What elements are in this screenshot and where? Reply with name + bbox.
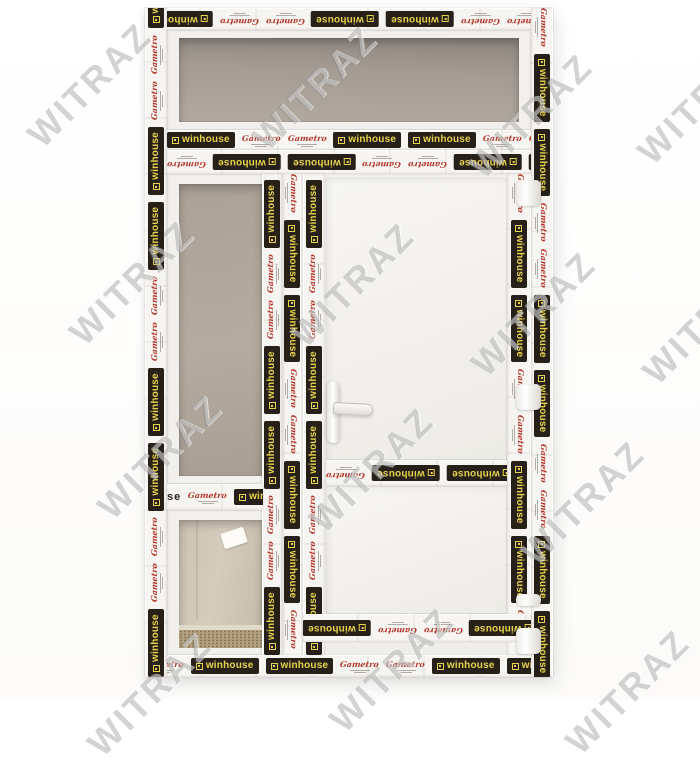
gametro-label: Gametro <box>378 622 417 635</box>
winhouse-logo: winhouse <box>511 295 527 363</box>
gametro-label: Gametro <box>536 249 549 288</box>
winhouse-square-icon <box>502 470 507 477</box>
winhouse-brand-text: winhouse <box>423 135 471 145</box>
winhouse-logo: winhouse <box>213 154 281 170</box>
tape-fineprint-line <box>470 15 490 16</box>
gametro-brand-text: Gametro <box>150 563 158 603</box>
tape-fineprint-line <box>229 15 249 16</box>
tape-mullion-right: GametrowinhousewinhouseGametroGametrowin… <box>283 174 301 655</box>
winhouse-square-icon <box>239 494 246 501</box>
sidelight-upper-glass <box>179 184 262 476</box>
winhouse-logo: winhouse <box>372 465 440 481</box>
winhouse-brand-text: winhouse <box>391 14 439 24</box>
winhouse-brand-text: winhouse <box>151 8 161 13</box>
gametro-brand-text: Gametro <box>541 490 549 530</box>
winhouse-square-icon <box>516 466 523 473</box>
tape-fineprint-line <box>396 670 416 671</box>
winhouse-square-icon <box>289 541 296 548</box>
tape-outer-left: winhouseGametroGametrowinhousewinhouseGa… <box>145 8 167 677</box>
tape-fineprint-line <box>162 49 163 61</box>
gametro-brand-text: Gametro <box>266 300 274 340</box>
winhouse-logo: winhouse <box>284 536 300 604</box>
winhouse-logo: winhouse <box>148 368 164 436</box>
tape-fineprint-line <box>320 555 321 567</box>
gametro-brand-text: Gametro <box>460 18 500 26</box>
tape-fineprint-line <box>536 217 537 229</box>
winhouse-square-icon <box>338 137 345 144</box>
winhouse-logo: winhouse <box>148 127 164 195</box>
door-lower-panel <box>326 486 507 614</box>
winhouse-square-icon <box>311 402 318 409</box>
gametro-label: Gametro <box>266 13 305 26</box>
gametro-label: Gametro <box>536 8 549 47</box>
gametro-brand-text: Gametro <box>386 660 426 668</box>
winhouse-brand-text: winhouse <box>537 310 547 358</box>
tape-outer-right: GametrowinhousewinhouseGametroGametrowin… <box>531 8 553 677</box>
tape-fineprint-line <box>536 263 537 275</box>
tape-fineprint-line <box>278 314 279 326</box>
winhouse-logo: winhouse <box>511 220 527 288</box>
winhouse-square-icon <box>442 16 449 23</box>
tape-fineprint-line <box>162 577 163 589</box>
winhouse-logo: winhouse <box>306 421 322 489</box>
gametro-label: Gametro <box>286 369 299 408</box>
tape-fineprint-line <box>318 264 319 284</box>
tape-door-right-stile: GametrowinhousewinhouseGametroGametrowin… <box>507 174 531 655</box>
tape-fineprint-line <box>276 264 277 284</box>
gametro-brand-text: Gametro <box>266 495 274 535</box>
gametro-brand-text: Gametro <box>377 627 417 635</box>
winhouse-logo: winhouse <box>432 658 500 674</box>
door-latch-keep <box>516 594 541 606</box>
tape-fineprint-line <box>255 146 267 147</box>
gametro-label: Gametro <box>167 156 206 169</box>
winhouse-square-icon <box>271 663 278 670</box>
winhouse-square-icon <box>311 477 318 484</box>
winhouse-logo: winhouse <box>148 443 164 511</box>
gametro-brand-text: Gametro <box>219 18 259 26</box>
gametro-label: Gametro <box>408 156 447 169</box>
winhouse-logo: winhouse <box>408 132 476 148</box>
winhouse-square-icon <box>359 625 366 632</box>
winhouse-logo: winhouse <box>264 421 280 489</box>
gametro-brand-text: Gametro <box>167 161 206 169</box>
winhouse-square-icon <box>289 225 296 232</box>
watermark-text: WITRAZ <box>629 31 700 172</box>
tape-fineprint-line <box>318 505 319 525</box>
watermark-text: WITRAZ <box>634 251 700 392</box>
tape-fineprint-line <box>251 144 271 145</box>
tape-fineprint-line <box>279 13 291 14</box>
gametro-label: Gametro <box>286 415 299 454</box>
tape-fineprint-line <box>233 13 245 14</box>
tape-fineprint-line <box>350 670 370 671</box>
winhouse-logo: winhouse <box>264 587 280 655</box>
gametro-brand-text: Gametro <box>291 369 299 409</box>
tape-fineprint-line <box>437 622 449 623</box>
winhouse-logo: winhouse <box>386 11 454 27</box>
winhouse-logo: winhouse <box>234 489 263 505</box>
gametro-brand-text: Gametro <box>362 161 402 169</box>
winhouse-brand-text: winhouse <box>267 351 277 399</box>
tape-fineprint-line <box>496 146 508 147</box>
tape-fineprint-line <box>318 310 319 330</box>
tape-fineprint-line <box>372 158 392 159</box>
tape-fineprint-line <box>387 624 407 625</box>
tape-fineprint-line <box>536 504 537 516</box>
winhouse-square-icon <box>153 183 160 190</box>
winhouse-brand-text: winhouse <box>377 468 425 478</box>
winhouse-brand-text: winhouse <box>151 373 161 421</box>
gametro-brand-text: Gametro <box>291 174 299 213</box>
gametro-brand-text: Gametro <box>266 541 274 581</box>
gametro-label: Gametro <box>362 156 401 169</box>
winhouse-square-icon <box>437 663 444 670</box>
winhouse-square-icon <box>539 134 546 141</box>
tape-fineprint-line <box>180 156 192 157</box>
tape-fineprint-line <box>160 573 161 593</box>
winhouse-square-icon <box>196 663 203 670</box>
winhouse-brand-text: winhouse <box>267 592 277 640</box>
tape-fineprint-line <box>536 21 537 33</box>
winhouse-brand-text: winhouse <box>514 551 524 599</box>
winhouse-logo: winhouse <box>264 180 280 248</box>
gametro-brand-text: Gametro <box>541 8 549 47</box>
gametro-brand-text: Gametro <box>518 415 526 455</box>
gametro-brand-text: Gametro <box>287 134 327 142</box>
tape-fineprint-line <box>400 672 412 673</box>
gametro-label: Gametro <box>242 134 281 147</box>
winhouse-logo: winhouse <box>529 154 531 170</box>
winhouse-brand-text: winhouse <box>309 426 319 474</box>
winhouse-brand-text: winhouse <box>316 14 364 24</box>
gametro-brand-text: Gametro <box>340 660 380 668</box>
tape-fineprint-line <box>320 268 321 280</box>
gametro-label: Gametro <box>266 255 279 294</box>
winhouse-square-icon <box>539 375 546 382</box>
winhouse-logo: winhouse <box>264 346 280 414</box>
winhouse-brand-text: winhouse <box>514 235 524 283</box>
gametro-label: Gametro <box>513 415 526 454</box>
tape-fineprint-line <box>278 509 279 521</box>
winhouse-brand-text: winhouse <box>151 448 161 496</box>
winhouse-square-icon <box>153 499 160 506</box>
winhouse-square-icon <box>512 663 519 670</box>
winhouse-logo: winhouse <box>511 461 527 529</box>
winhouse-square-icon <box>539 300 546 307</box>
tape-fineprint-line <box>276 310 277 330</box>
gametro-label: Gametro <box>286 174 299 213</box>
winhouse-square-icon <box>269 643 276 650</box>
tape-door-midrail: GametrowinhousewinhouseGametroGametrowin… <box>326 460 507 486</box>
tape-fineprint-line <box>160 286 161 306</box>
winhouse-logo: winhouse <box>284 220 300 288</box>
winhouse-brand-text: winhouse <box>348 135 396 145</box>
gametro-brand-text: Gametro <box>150 517 158 557</box>
gametro-brand-text: Gametro <box>308 254 316 294</box>
tape-sidelight-midrail: seGametrowinhouse <box>167 484 263 510</box>
gametro-brand-text: Gametro <box>291 415 299 455</box>
winhouse-logo: winhouse <box>454 154 522 170</box>
winhouse-square-icon <box>428 470 435 477</box>
door-hinge-top <box>516 180 541 206</box>
tape-fineprint-line <box>513 429 514 441</box>
door-handle-lever <box>333 402 374 416</box>
tape-fineprint-line <box>160 45 161 65</box>
gametro-label: Gametro <box>308 255 321 294</box>
tape-fineprint-line <box>422 156 434 157</box>
tape-fineprint-line <box>536 458 537 470</box>
winhouse-square-icon <box>269 402 276 409</box>
gametro-brand-text: Gametro <box>308 300 316 340</box>
tape-fineprint-line <box>286 624 287 636</box>
tape-fineprint-line <box>276 505 277 525</box>
gametro-label: Gametro <box>529 134 531 147</box>
gametro-label: Gametro <box>220 13 259 26</box>
gametro-label: Gametro <box>340 660 379 673</box>
glass-sticker <box>220 527 248 550</box>
gametro-brand-text: Gametro <box>482 134 522 142</box>
tape-fineprint-line <box>286 429 287 441</box>
winhouse-brand-text: winhouse <box>287 476 297 524</box>
gametro-brand-text: Gametro <box>541 444 549 484</box>
winhouse-brand-text: winhouse <box>474 623 522 633</box>
winhouse-brand-text: winhouse <box>182 135 230 145</box>
winhouse-logo: winhouse <box>284 461 300 529</box>
tape-fineprint-line <box>297 144 317 145</box>
gametro-label: Gametro <box>326 467 365 480</box>
winhouse-brand-text: winhouse <box>309 185 319 233</box>
tape-fineprint-line <box>433 624 453 625</box>
winhouse-brand-text: winhouse <box>514 310 524 358</box>
winhouse-brand-text: winhouse <box>151 614 161 662</box>
winhouse-brand-text: winhouse <box>287 235 297 283</box>
gametro-brand-text: Gametro <box>308 495 316 535</box>
winhouse-brand-text: winhouse <box>514 476 524 524</box>
winhouse-logo: winhouse <box>284 295 300 363</box>
gametro-brand-text: Gametro <box>408 161 448 169</box>
tape-fineprint-line <box>162 531 163 543</box>
tape-fineprint-line <box>286 383 287 395</box>
tape-fineprint-line <box>160 91 161 111</box>
gametro-brand-text: Gametro <box>308 541 316 581</box>
winhouse-brand-text: winhouse <box>151 207 161 255</box>
tape-fineprint-line <box>160 332 161 352</box>
tape-joint-band: GametrowinhousewinhouseGametroGametrowin… <box>167 150 531 174</box>
gametro-brand-text: Gametro <box>266 254 274 294</box>
gametro-brand-text: Gametro <box>150 276 158 316</box>
winhouse-brand-text: winhouse <box>309 351 319 399</box>
door-hinge-bottom <box>516 628 541 654</box>
tape-fineprint-line <box>278 268 279 280</box>
winhouse-logo: winhouse <box>288 154 356 170</box>
tape-marking: se <box>167 491 181 503</box>
tape-mullion-left: winhouseGametroGametrowinhousewinhouseGa… <box>262 174 282 655</box>
gametro-label: Gametro <box>536 490 549 529</box>
winhouse-brand-text: winhouse <box>537 69 547 117</box>
winhouse-square-icon <box>413 137 420 144</box>
tape-fineprint-line <box>418 158 438 159</box>
gametro-brand-text: Gametro <box>541 203 549 243</box>
tape-fineprint-line <box>286 187 287 199</box>
winhouse-logo: winhouse <box>311 11 379 27</box>
winhouse-brand-text: winhouse <box>151 132 161 180</box>
tape-fineprint-line <box>202 503 214 504</box>
gametro-label: Gametro <box>483 134 522 147</box>
winhouse-brand-text: winhouse <box>308 623 356 633</box>
winhouse-square-icon <box>201 16 208 23</box>
winhouse-logo: winhouse <box>306 346 322 414</box>
sidelight-lower-glass <box>179 520 262 648</box>
gametro-label: Gametro <box>536 203 549 242</box>
tape-fineprint-line <box>160 527 161 547</box>
winhouse-logo: winhouse <box>167 132 235 148</box>
winhouse-logo: winhouse <box>148 609 164 677</box>
winhouse-logo: winhouse <box>447 465 507 481</box>
gametro-label: Gametro <box>386 660 425 673</box>
tape-fineprint-line <box>320 314 321 326</box>
gametro-label: Gametro <box>536 444 549 483</box>
winhouse-logo: winhouse <box>303 620 371 636</box>
tape-fineprint-line <box>513 187 514 199</box>
winhouse-square-icon <box>516 541 523 548</box>
gametro-brand-text: Gametro <box>265 18 305 26</box>
tape-fineprint-line <box>276 551 277 571</box>
tape-fineprint-line <box>339 467 351 468</box>
gametro-label: Gametro <box>461 13 500 26</box>
winhouse-brand-text: winhouse <box>206 661 254 671</box>
tape-fineprint-line <box>176 158 196 159</box>
winhouse-square-icon <box>539 59 546 66</box>
gametro-label: Gametro <box>150 322 163 361</box>
winhouse-square-icon <box>153 16 160 23</box>
gametro-brand-text: Gametro <box>541 249 549 289</box>
winhouse-square-icon <box>516 225 523 232</box>
tape-door-left-stile: winhouseGametroGametrowinhousewinhouseGa… <box>303 174 325 655</box>
winhouse-square-icon <box>172 137 179 144</box>
winhouse-logo: winhouse <box>148 202 164 270</box>
winhouse-brand-text: winhouse <box>287 310 297 358</box>
gametro-label: Gametro <box>150 81 163 120</box>
tape-fineprint-line <box>301 146 313 147</box>
tape-fineprint-line <box>335 469 355 470</box>
winhouse-brand-text: winhouse <box>293 157 341 167</box>
gametro-label: Gametro <box>308 541 321 580</box>
gametro-brand-text: Gametro <box>528 134 531 142</box>
tape-fineprint-line <box>162 336 163 348</box>
winhouse-logo: winhouse <box>148 8 164 28</box>
winhouse-brand-text: winhouse <box>287 551 297 599</box>
transom-glass <box>179 38 519 122</box>
gametro-brand-text: Gametro <box>150 81 158 121</box>
room-wall-corner <box>196 520 198 620</box>
gametro-brand-text: Gametro <box>423 627 463 635</box>
watermark-text: WITRAZ <box>19 14 160 155</box>
tape-fineprint-line <box>162 95 163 107</box>
gametro-brand-text: Gametro <box>241 134 281 142</box>
winhouse-brand-text: winhouse <box>459 157 507 167</box>
gametro-brand-text: Gametro <box>326 472 365 480</box>
winhouse-brand-text: winhouse <box>249 492 263 502</box>
gametro-label: Gametro <box>266 541 279 580</box>
tape-fineprint-line <box>318 551 319 571</box>
gametro-brand-text: Gametro <box>188 491 228 499</box>
tape-fineprint-line <box>474 13 486 14</box>
winhouse-square-icon <box>269 159 276 166</box>
winhouse-square-icon <box>289 300 296 307</box>
tape-fineprint-line <box>376 156 388 157</box>
tape-outer-top: winhouseGametroGametrowinhousewinhouseGa… <box>145 8 553 30</box>
winhouse-square-icon <box>153 258 160 265</box>
gametro-label: Gametro <box>286 610 299 649</box>
winhouse-brand-text: winhouse <box>452 468 500 478</box>
winhouse-logo: winhouse <box>191 658 259 674</box>
winhouse-square-icon <box>153 665 160 672</box>
winhouse-brand-text: winhouse <box>218 157 266 167</box>
winhouse-square-icon <box>311 643 318 650</box>
gametro-label: Gametro <box>308 300 321 339</box>
gametro-brand-text: Gametro <box>150 322 158 362</box>
winhouse-square-icon <box>311 236 318 243</box>
winhouse-logo: winhouse <box>333 132 401 148</box>
watermark-text: WITRAZ <box>557 621 698 762</box>
tape-fineprint-line <box>320 509 321 521</box>
gametro-label: Gametro <box>424 622 463 635</box>
winhouse-logo: winhouse <box>534 295 550 363</box>
winhouse-square-icon <box>510 159 517 166</box>
gametro-label: Gametro <box>150 518 163 557</box>
tape-outer-bottom: GametrowinhousewinhouseGametroGametrowin… <box>145 655 553 677</box>
gametro-brand-text: Gametro <box>150 35 158 75</box>
tape-fineprint-line <box>198 501 218 502</box>
door-upper-panel <box>326 178 507 460</box>
winhouse-brand-text: winhouse <box>537 551 547 599</box>
winhouse-square-icon <box>289 466 296 473</box>
tape-fineprint-line <box>275 15 295 16</box>
gametro-label: Gametro <box>288 134 327 147</box>
tape-fineprint-line <box>513 383 514 395</box>
winhouse-square-icon <box>153 424 160 431</box>
winhouse-logo: winhouse <box>534 54 550 122</box>
winhouse-brand-text: winhouse <box>447 661 495 671</box>
gametro-brand-text: Gametro <box>291 610 299 650</box>
winhouse-square-icon <box>539 616 546 623</box>
room-carpet-floor <box>179 630 262 648</box>
product-photo: winhouseGametroGametrowinhousewinhouseGa… <box>0 0 700 700</box>
door-hinge-middle <box>516 384 541 410</box>
tape-fineprint-line <box>492 144 512 145</box>
tape-fineprint-line <box>391 622 403 623</box>
winhouse-logo: winhouse <box>266 658 334 674</box>
winhouse-square-icon <box>343 159 350 166</box>
gametro-label: Gametro <box>266 496 279 535</box>
gametro-label: Gametro <box>188 491 227 504</box>
tape-fineprint-line <box>354 672 366 673</box>
winhouse-square-icon <box>539 541 546 548</box>
tape-transom-bottom: winhouseGametroGametrowinhousewinhouseGa… <box>167 130 531 150</box>
winhouse-brand-text: winhouse <box>267 426 277 474</box>
winhouse-square-icon <box>269 236 276 243</box>
gametro-label: Gametro <box>266 300 279 339</box>
tape-fineprint-line <box>278 555 279 567</box>
winhouse-logo: winhouse <box>306 180 322 248</box>
tape-door-bottom: winhouseGametroGametrowinhousewinhouseGa… <box>303 614 531 642</box>
winhouse-brand-text: winhouse <box>267 185 277 233</box>
tape-fineprint-line <box>162 290 163 302</box>
winhouse-brand-text: winhouse <box>281 661 329 671</box>
winhouse-square-icon <box>516 300 523 307</box>
gametro-label: Gametro <box>308 496 321 535</box>
